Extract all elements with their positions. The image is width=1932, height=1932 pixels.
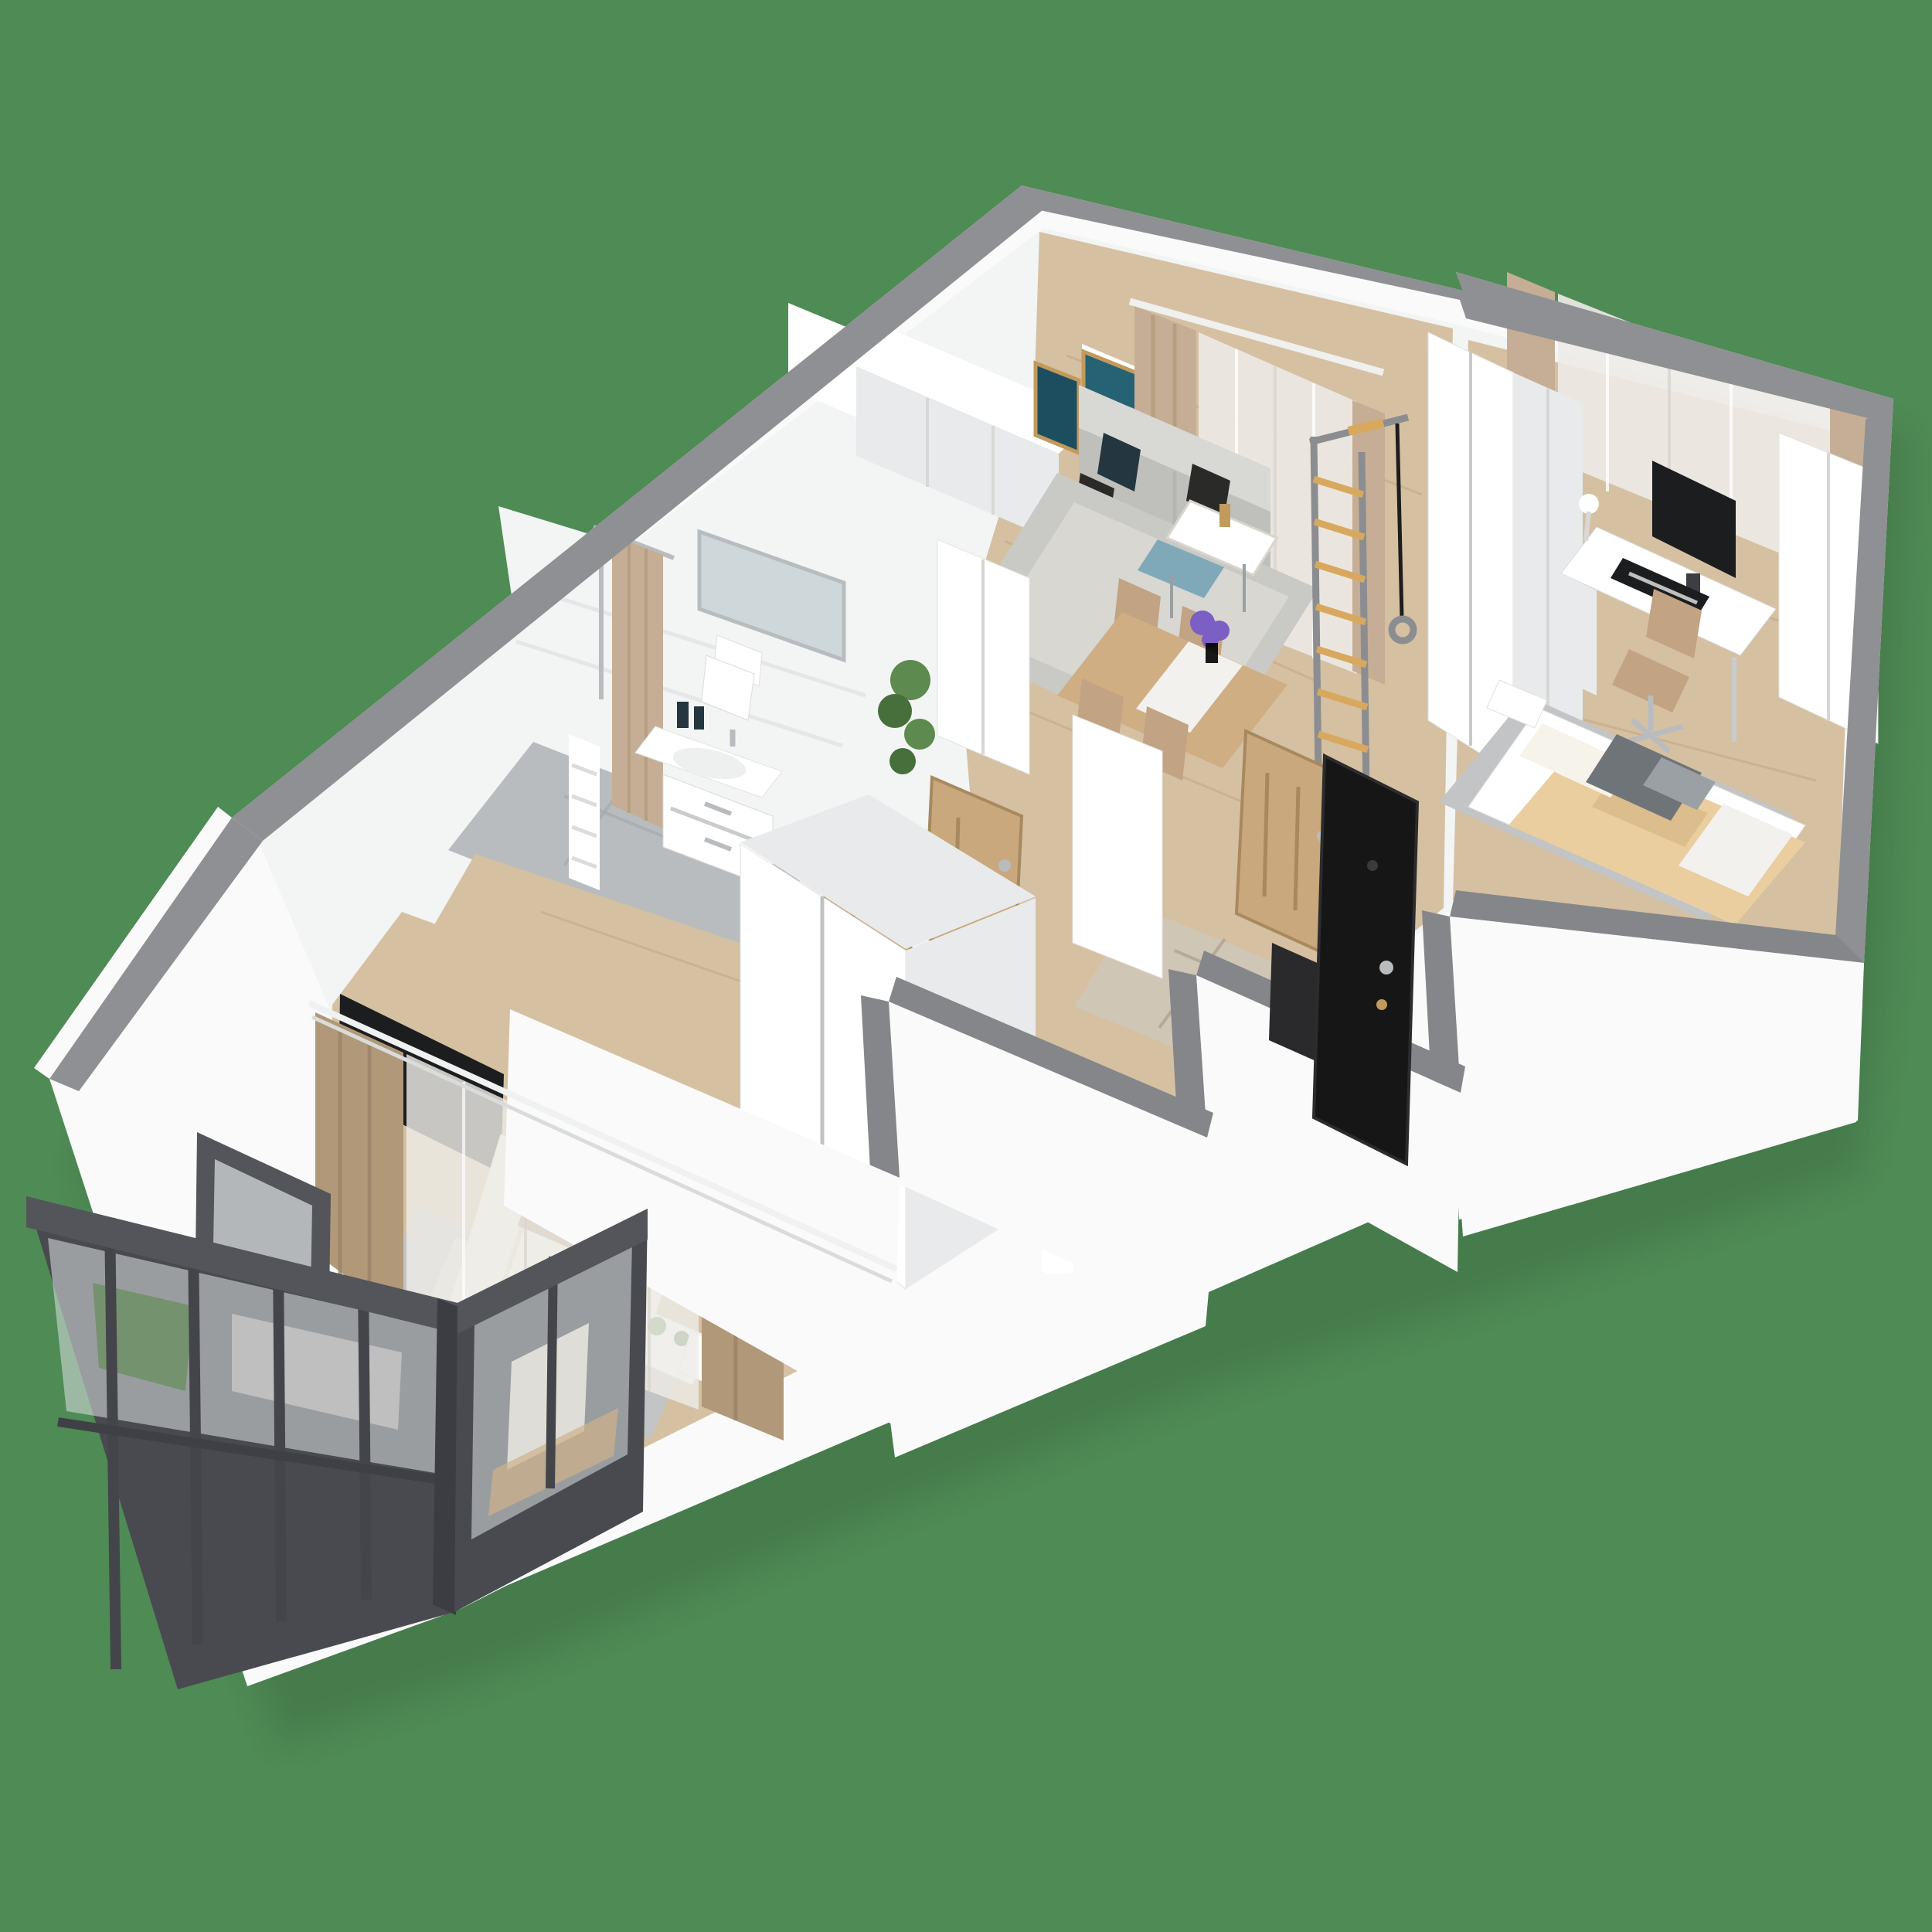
tall-cabinet-entry [1073,715,1162,978]
shower-curtain [612,535,663,828]
soap-bottle [677,702,689,728]
balcony-mullion [363,1281,366,1600]
desk-lamp [1579,494,1599,514]
floor-plan-render [0,0,1932,1932]
balcony-mullion [110,1218,116,1669]
living-beige-curtain-right [1352,400,1385,685]
entrance-door-leaf [1314,756,1417,1164]
door-peephole [1367,860,1378,871]
gold-vase [1219,504,1230,527]
balcony-mullion [278,1260,281,1621]
door-keyhole [1376,999,1387,1010]
wall-artwork-small [1036,363,1079,453]
towel-radiator [569,734,600,890]
soap-bottle [694,706,704,730]
door-handle [1379,961,1393,975]
floor-plan-stage [0,0,1932,1932]
desk-front [1561,573,1597,696]
door-handle [998,859,1011,872]
flower-vase [1206,643,1218,663]
desk-lamp-arm [1586,512,1589,541]
balcony-mullion [550,1257,553,1488]
